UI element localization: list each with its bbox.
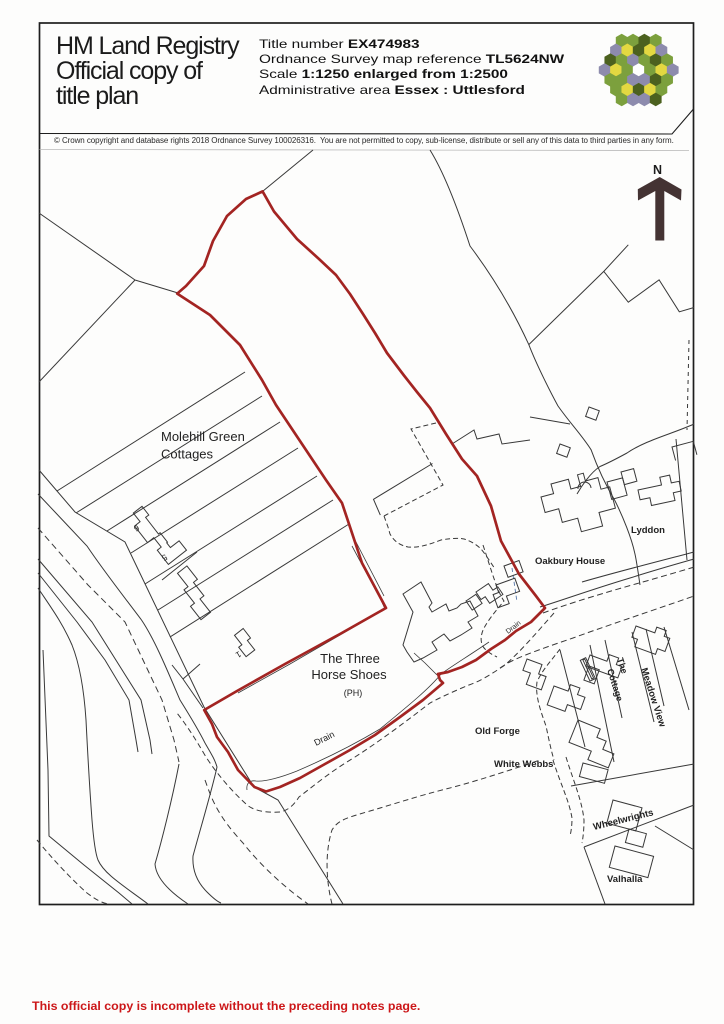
svg-text:Oakbury House: Oakbury House bbox=[535, 556, 605, 567]
svg-text:Wheelwrights: Wheelwrights bbox=[592, 807, 655, 833]
svg-text:9: 9 bbox=[132, 523, 141, 534]
svg-text:N: N bbox=[653, 163, 662, 177]
svg-text:Valhalla: Valhalla bbox=[607, 874, 643, 885]
svg-text:Lyddon: Lyddon bbox=[631, 525, 665, 536]
svg-text:Old Forge: Old Forge bbox=[475, 726, 520, 737]
svg-text:Drain: Drain bbox=[312, 729, 336, 748]
svg-text:Horse Shoes: Horse Shoes bbox=[311, 667, 387, 682]
svg-text:The Three: The Three bbox=[320, 651, 380, 666]
svg-text:Cottages: Cottages bbox=[161, 447, 214, 462]
svg-text:5: 5 bbox=[160, 552, 169, 563]
svg-text:White Webbs: White Webbs bbox=[494, 759, 553, 770]
svg-text:Molehill Green: Molehill Green bbox=[161, 429, 245, 444]
svg-text:(PH): (PH) bbox=[344, 688, 363, 698]
svg-text:The: The bbox=[615, 657, 629, 675]
